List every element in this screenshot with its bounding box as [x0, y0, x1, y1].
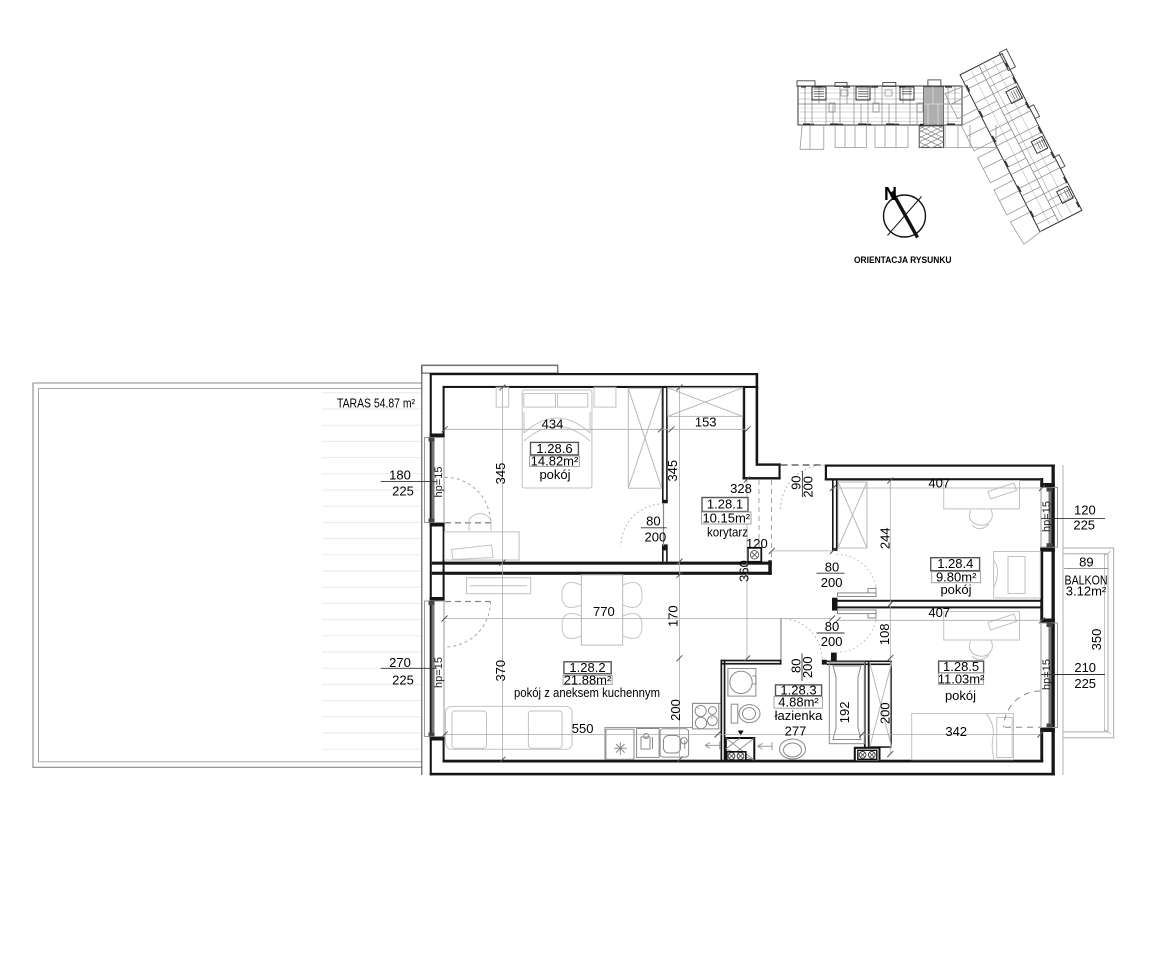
svg-text:345: 345	[493, 463, 508, 485]
svg-text:TARAS 54.87 m²: TARAS 54.87 m²	[337, 397, 415, 411]
svg-text:200: 200	[800, 656, 815, 678]
svg-text:277: 277	[785, 724, 807, 739]
svg-text:3.12m²: 3.12m²	[1066, 584, 1107, 599]
svg-text:342: 342	[945, 724, 967, 739]
svg-text:180: 180	[389, 468, 411, 483]
svg-text:225: 225	[1074, 676, 1096, 691]
svg-text:770: 770	[593, 604, 615, 619]
svg-text:80: 80	[825, 559, 839, 574]
svg-text:434: 434	[542, 417, 564, 432]
svg-text:80: 80	[825, 619, 839, 634]
svg-text:244: 244	[877, 527, 892, 549]
svg-text:200: 200	[878, 702, 893, 724]
svg-text:225: 225	[392, 673, 414, 688]
svg-text:korytarz: korytarz	[707, 525, 748, 540]
svg-text:153: 153	[695, 415, 717, 430]
svg-text:345: 345	[665, 460, 680, 482]
svg-text:407: 407	[928, 475, 950, 490]
svg-text:108: 108	[877, 623, 892, 645]
svg-text:89: 89	[1079, 555, 1093, 570]
svg-text:11.03m²: 11.03m²	[938, 672, 985, 687]
svg-text:pokój: pokój	[945, 688, 976, 703]
svg-text:200: 200	[821, 575, 843, 590]
svg-text:225: 225	[392, 484, 414, 499]
svg-text:hp=15: hp=15	[433, 467, 445, 498]
svg-text:hp=15: hp=15	[1041, 659, 1053, 690]
svg-text:407: 407	[928, 605, 950, 620]
svg-text:80: 80	[646, 514, 660, 529]
svg-text:360: 360	[737, 560, 752, 582]
svg-text:120: 120	[746, 536, 768, 551]
svg-text:hp=15: hp=15	[433, 657, 445, 688]
svg-text:200: 200	[668, 699, 683, 721]
svg-text:N: N	[884, 184, 897, 204]
svg-text:170: 170	[666, 605, 681, 627]
svg-text:pokój: pokój	[940, 582, 971, 597]
svg-text:ORIENTACJA RYSUNKU: ORIENTACJA RYSUNKU	[854, 255, 952, 266]
svg-text:pokój z aneksem kuchennym: pokój z aneksem kuchennym	[514, 686, 660, 700]
svg-text:10.15m²: 10.15m²	[702, 510, 750, 525]
svg-text:328: 328	[730, 481, 752, 496]
svg-text:hp=15: hp=15	[1041, 501, 1053, 532]
svg-text:120: 120	[1074, 502, 1096, 517]
svg-text:270: 270	[389, 655, 411, 670]
svg-text:192: 192	[837, 702, 852, 724]
svg-text:200: 200	[801, 476, 816, 498]
svg-text:pokój: pokój	[539, 467, 570, 482]
svg-text:370: 370	[493, 660, 508, 682]
svg-text:łazienka: łazienka	[775, 708, 823, 723]
svg-text:350: 350	[1089, 629, 1104, 651]
svg-text:225: 225	[1073, 518, 1095, 533]
svg-text:210: 210	[1074, 660, 1096, 675]
svg-text:200: 200	[821, 634, 843, 649]
svg-text:200: 200	[645, 530, 667, 545]
svg-text:550: 550	[572, 721, 594, 736]
svg-text:1.28.1: 1.28.1	[707, 497, 743, 512]
